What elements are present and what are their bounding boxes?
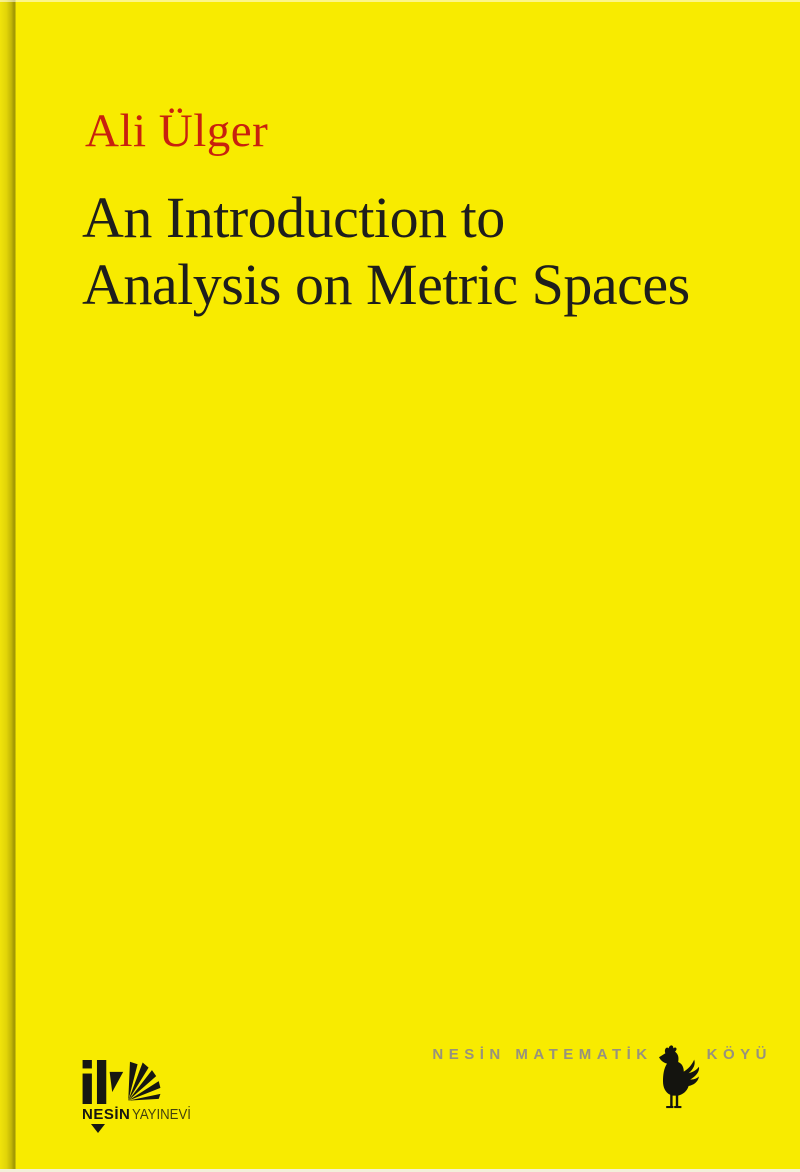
publisher-wordmark: NESİNYAYINEVİ — [82, 1107, 192, 1122]
rooster-icon — [655, 1038, 703, 1118]
village-text-left: NESİN MATEMATİK — [432, 1046, 652, 1063]
author-name: Ali Ülger — [85, 104, 268, 158]
spine-shadow — [0, 0, 16, 1172]
cover-top-edge — [0, 0, 800, 2]
title-line-2: Analysis on Metric Spaces — [82, 251, 690, 318]
book-cover: Ali Ülger An Introduction to Analysis on… — [0, 0, 800, 1172]
nesin-yayinevi-monogram-icon — [82, 1060, 161, 1104]
publisher-logo: NESİNYAYINEVİ — [82, 1060, 192, 1133]
math-village-mark: NESİN MATEMATİK KÖYÜ — [432, 1042, 772, 1118]
publisher-name-light: YAYINEVİ — [132, 1107, 191, 1122]
book-title: An Introduction to Analysis on Metric Sp… — [82, 184, 690, 318]
village-text-right: KÖYÜ — [707, 1046, 772, 1063]
publisher-name-bold: NESİN — [82, 1106, 130, 1123]
title-line-1: An Introduction to — [82, 184, 690, 251]
triangle-down-icon — [91, 1124, 105, 1133]
